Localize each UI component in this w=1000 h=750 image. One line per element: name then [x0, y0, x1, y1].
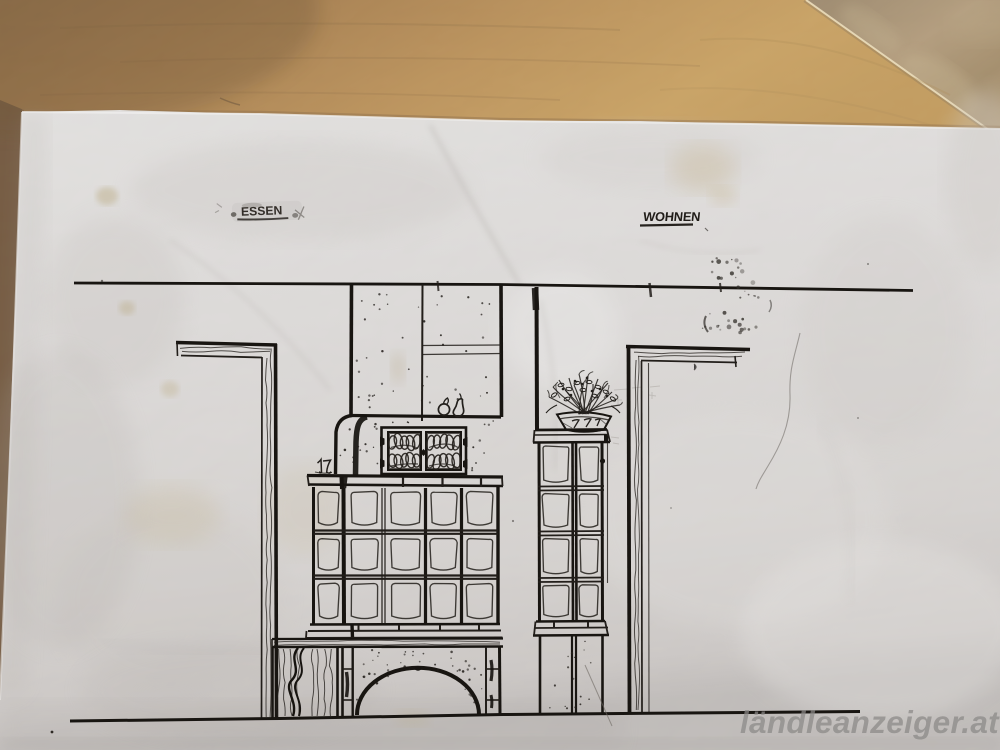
svg-text:ländleanzeiger.at: ländleanzeiger.at	[740, 704, 1000, 740]
svg-text:WOHNEN: WOHNEN	[642, 209, 701, 224]
